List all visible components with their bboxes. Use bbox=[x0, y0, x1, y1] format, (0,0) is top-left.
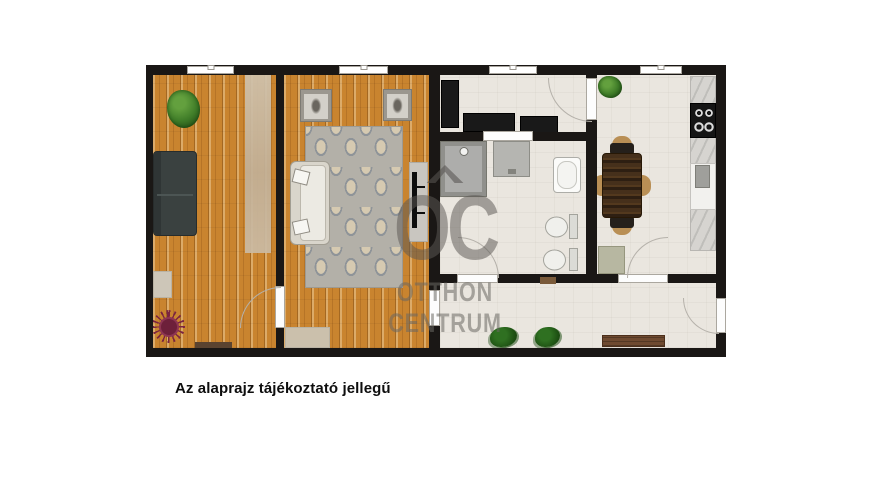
bedroom-plant bbox=[167, 90, 200, 128]
toilet bbox=[545, 213, 578, 240]
hallway-window bbox=[489, 66, 537, 74]
tv bbox=[412, 172, 417, 228]
bidet-tank bbox=[569, 248, 578, 271]
spike-round-rug bbox=[152, 310, 185, 343]
bidet bbox=[543, 247, 578, 272]
bathtub bbox=[553, 157, 581, 193]
kitchen-window bbox=[640, 66, 682, 74]
wall-bath-corridor bbox=[429, 274, 597, 283]
bidet-bowl bbox=[543, 249, 566, 270]
bathroom-shelf bbox=[540, 277, 556, 284]
toilet-tank bbox=[569, 214, 578, 239]
entry-bench bbox=[602, 335, 665, 347]
kitchen-cabinet bbox=[598, 246, 625, 274]
tv-mount bbox=[417, 186, 425, 188]
disclaimer-caption: Az alaprajz tájékoztató jellegű bbox=[175, 380, 391, 397]
cooktop bbox=[690, 103, 716, 138]
living-room-sofa bbox=[290, 161, 330, 245]
dining-table bbox=[602, 153, 642, 218]
kitchen-sink bbox=[695, 165, 710, 188]
wall-left bbox=[146, 65, 153, 357]
toilet-bowl bbox=[545, 216, 568, 237]
bedroom-window bbox=[187, 66, 234, 74]
floor-plan: OC OTTHON CENTRUM bbox=[146, 65, 726, 357]
washing-machine bbox=[493, 141, 530, 177]
shower bbox=[440, 141, 487, 197]
sofa-pillow bbox=[292, 168, 311, 185]
framed-portrait-left bbox=[300, 89, 332, 122]
bedroom-runner-rug bbox=[245, 75, 271, 253]
hall-bath-opening bbox=[483, 131, 533, 141]
floor-plan-image: OC OTTHON CENTRUM Az alaprajz tájékoztat… bbox=[0, 0, 888, 500]
framed-portrait-right bbox=[383, 89, 412, 121]
tv-mount bbox=[417, 212, 425, 214]
living-room-doormat-rug bbox=[285, 327, 330, 348]
living-corridor-door bbox=[429, 290, 440, 326]
bedroom-small-rug bbox=[153, 271, 172, 298]
hall-sideboard-left bbox=[463, 113, 515, 132]
kitchen-plant bbox=[598, 76, 622, 98]
bedroom-sofa bbox=[153, 151, 197, 236]
living-room-window bbox=[339, 66, 388, 74]
hall-wardrobe bbox=[441, 80, 459, 128]
shower-head-icon bbox=[459, 147, 468, 156]
